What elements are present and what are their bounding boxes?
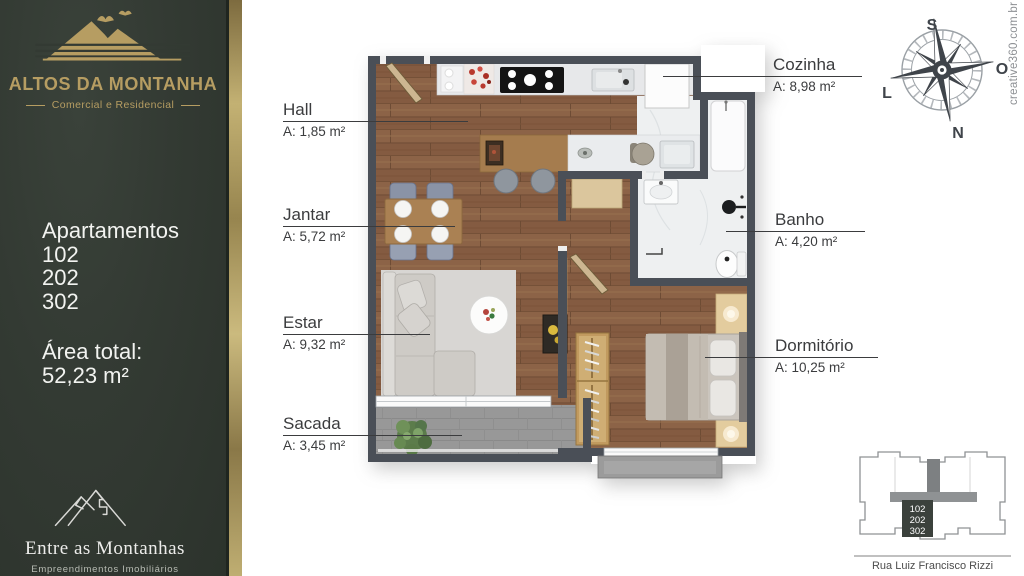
room-area: A: 1,85 m² <box>283 122 468 139</box>
tagline-rule-right <box>181 105 200 106</box>
room-label-banho: Banho A: 4,20 m² <box>726 210 865 249</box>
brand-tagline: Comercial e Residencial <box>0 95 226 111</box>
room-label-cozinha: Cozinha A: 8,98 m² <box>663 55 862 94</box>
room-area: A: 5,72 m² <box>283 227 455 244</box>
room-label-jantar: Jantar A: 5,72 m² <box>283 205 455 244</box>
room-label-estar: Estar A: 9,32 m² <box>283 313 430 352</box>
unit-number-302: 302 <box>42 290 179 314</box>
shower-tray <box>711 101 745 171</box>
unit-number-102: 102 <box>42 243 179 267</box>
page: ALTOS DA MONTANHA Comercial e Residencia… <box>0 0 1024 576</box>
room-label-hall: Hall A: 1,85 m² <box>283 100 468 139</box>
bar-stool <box>494 169 518 193</box>
keyplan-unit-102: 102 <box>910 504 926 515</box>
street-label: Rua Luiz Francisco Rizzi <box>872 560 993 572</box>
total-area-value: 52,23 m² <box>42 364 142 388</box>
room-label-sacada: Sacada A: 3,45 m² <box>283 414 462 453</box>
toilet <box>716 251 738 278</box>
tagline-rule-left <box>26 105 45 106</box>
room-area: A: 9,32 m² <box>283 335 430 352</box>
coffee-table <box>470 296 508 334</box>
hall-cabinet <box>572 179 622 208</box>
room-name: Hall <box>283 100 468 121</box>
total-area-label: Área total: <box>42 340 142 364</box>
room-name: Banho <box>726 210 865 231</box>
room-area: A: 10,25 m² <box>705 358 878 375</box>
gold-divider <box>226 0 242 576</box>
compass-south-label: S <box>927 17 938 34</box>
room-name: Jantar <box>283 205 455 226</box>
watermark-text: creative360.com.br <box>1008 2 1020 105</box>
room-name: Sacada <box>283 414 462 435</box>
total-area: Área total: 52,23 m² <box>42 340 142 387</box>
room-name: Estar <box>283 313 430 334</box>
sidebar: ALTOS DA MONTANHA Comercial e Residencia… <box>0 0 226 576</box>
footer-brand-tagline: Empreendimentos Imobiliários <box>0 564 210 575</box>
room-area: A: 4,20 m² <box>726 232 865 249</box>
room-name: Cozinha <box>663 55 862 76</box>
brand-logo: ALTOS DA MONTANHA Comercial e Residencia… <box>0 10 226 111</box>
keyplan-unit-202: 202 <box>910 515 926 526</box>
building-key-plan: 102 202 302 Rua Luiz Francisco Rizzi <box>850 442 1015 572</box>
mountain-logo-icon <box>18 10 208 68</box>
unit-number-202: 202 <box>42 266 179 290</box>
keyplan-unit-302: 302 <box>910 526 926 537</box>
room-name: Dormitório <box>705 336 878 357</box>
apartments-heading: Apartamentos <box>42 219 179 243</box>
compass-rose-icon: S O L N <box>875 2 1015 142</box>
room-label-dormitorio: Dormitório A: 10,25 m² <box>705 336 878 375</box>
footer-brand-name: Entre as Montanhas <box>0 538 210 560</box>
compass-west-label: O <box>996 61 1008 78</box>
bar-stool <box>531 169 555 193</box>
apartments-list: Apartamentos 102 202 302 <box>42 219 179 313</box>
brand-tagline-text: Comercial e Residencial <box>52 99 174 111</box>
room-area: A: 3,45 m² <box>283 436 462 453</box>
footer-mountains-icon <box>50 483 160 531</box>
compass-north-label: N <box>952 125 964 142</box>
room-area: A: 8,98 m² <box>663 77 862 94</box>
brand-name: ALTOS DA MONTANHA <box>0 74 226 95</box>
footer-logo: Entre as Montanhas Empreendimentos Imobi… <box>0 483 210 575</box>
compass-east-label: L <box>882 85 892 102</box>
